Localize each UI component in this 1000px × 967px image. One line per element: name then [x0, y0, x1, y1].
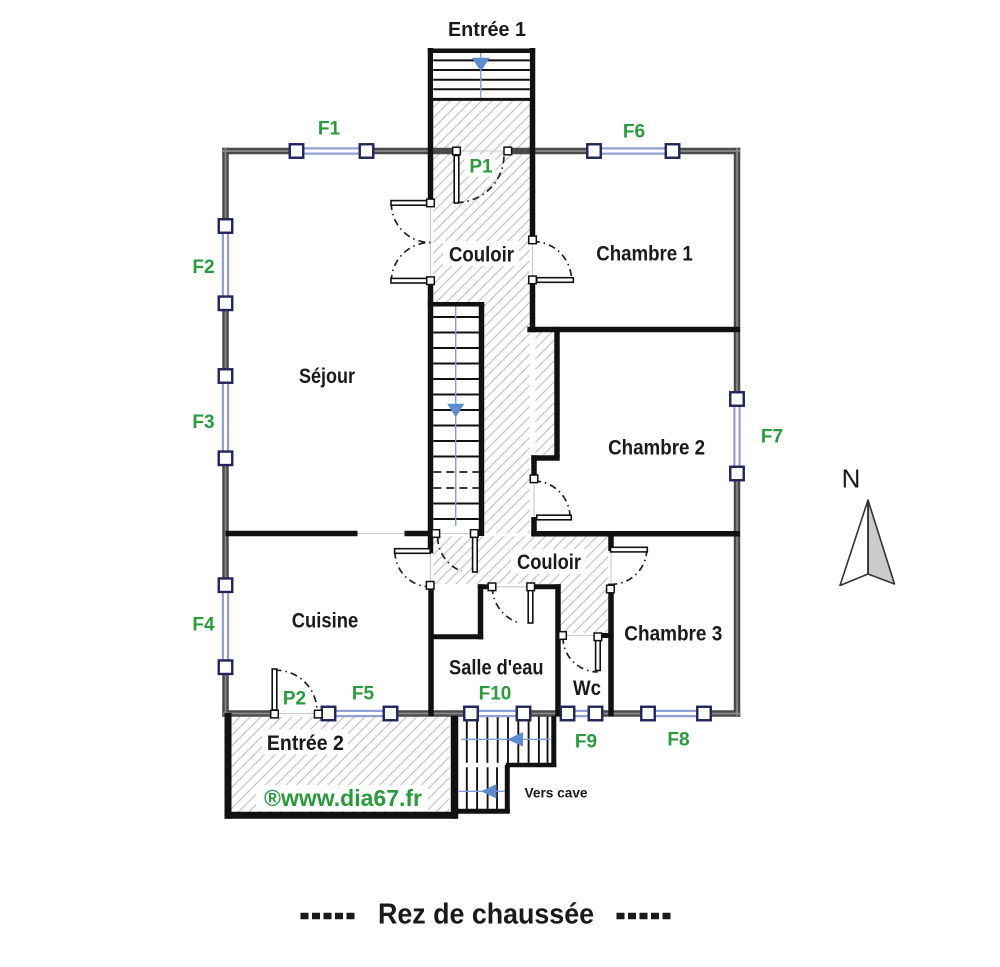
svg-text:F10: F10 — [479, 684, 512, 705]
svg-text:Wc: Wc — [573, 677, 601, 700]
svg-text:Chambre 2: Chambre 2 — [608, 437, 705, 460]
svg-text:Cuisine: Cuisine — [292, 609, 359, 632]
svg-text:F2: F2 — [192, 257, 214, 278]
svg-text:Chambre 1: Chambre 1 — [596, 242, 693, 265]
svg-text:F5: F5 — [352, 684, 375, 705]
svg-text:Entrée 2: Entrée 2 — [267, 732, 344, 755]
svg-text:F7: F7 — [761, 427, 783, 448]
svg-text:Séjour: Séjour — [299, 365, 355, 388]
svg-text:P1: P1 — [469, 157, 493, 178]
svg-text:Couloir: Couloir — [449, 244, 514, 267]
svg-text:Couloir: Couloir — [517, 551, 581, 574]
svg-text:F6: F6 — [623, 122, 645, 143]
svg-text:Vers cave: Vers cave — [525, 785, 588, 801]
svg-text:F9: F9 — [575, 732, 597, 753]
svg-text:N: N — [842, 464, 861, 494]
svg-text:®www.dia67.fr: ®www.dia67.fr — [264, 785, 422, 811]
svg-text:P2: P2 — [283, 689, 306, 710]
svg-text:F4: F4 — [192, 615, 215, 636]
svg-text:F8: F8 — [667, 730, 689, 751]
svg-text:Chambre 3: Chambre 3 — [624, 623, 722, 646]
svg-text:F3: F3 — [192, 412, 214, 433]
svg-text:Entrée 1: Entrée 1 — [448, 19, 526, 41]
svg-text:F1: F1 — [318, 119, 341, 140]
svg-text:Salle d'eau: Salle d'eau — [449, 657, 544, 680]
svg-text:Rez de chaussée: Rez de chaussée — [378, 898, 594, 930]
